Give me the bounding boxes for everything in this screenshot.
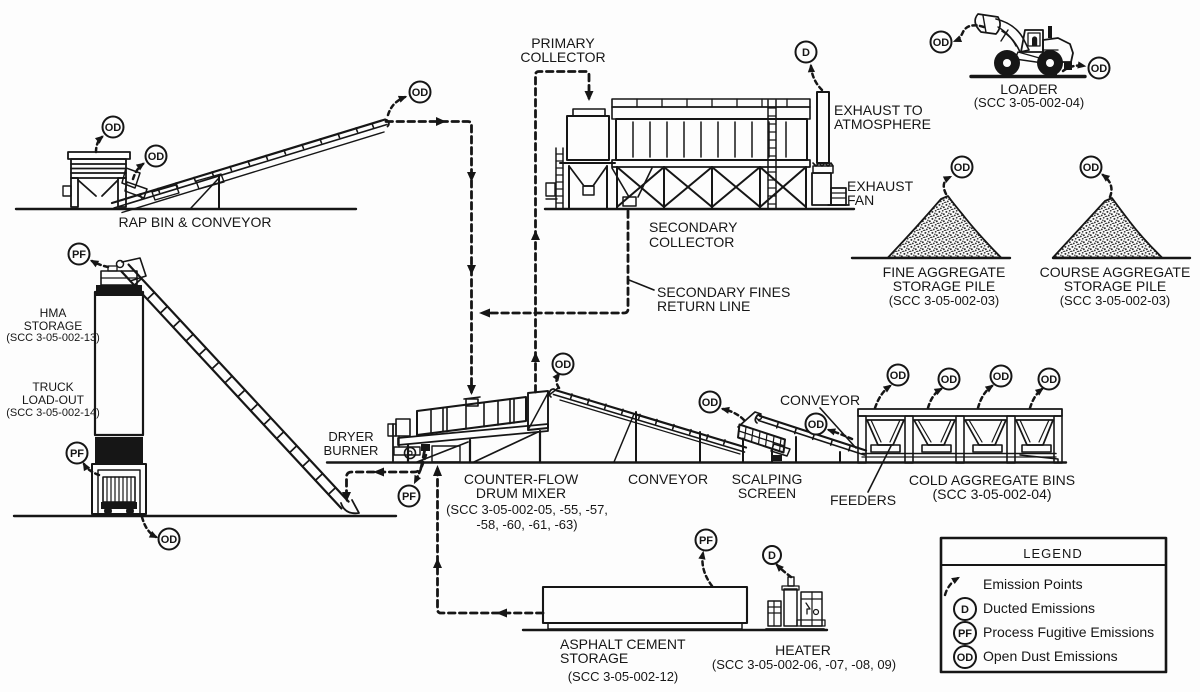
svg-text:OD: OD [808,419,825,431]
svg-text:(SCC 3-05-002-14): (SCC 3-05-002-14) [6,407,100,419]
svg-text:SECONDARY: SECONDARY [649,219,738,235]
svg-text:CONVEYOR: CONVEYOR [780,392,860,408]
svg-text:Process Fugitive Emissions: Process Fugitive Emissions [983,624,1154,640]
svg-text:D: D [802,47,810,59]
svg-text:FAN: FAN [847,192,874,208]
svg-text:COLLECTOR: COLLECTOR [649,234,734,250]
svg-text:OD: OD [555,359,572,371]
svg-text:Ducted Emissions: Ducted Emissions [983,600,1095,616]
svg-text:ATMOSPHERE: ATMOSPHERE [834,116,931,132]
svg-text:PF: PF [72,249,86,261]
svg-text:PF: PF [958,628,972,640]
svg-text:(SCC 3-05-002-04): (SCC 3-05-002-04) [974,95,1085,110]
svg-text:OD: OD [957,652,974,664]
svg-text:OD: OD [1091,63,1108,75]
svg-text:RETURN LINE: RETURN LINE [657,298,750,314]
svg-text:LEGEND: LEGEND [1023,546,1082,561]
svg-text:(SCC 3-05-002-06, -07, -08, 09: (SCC 3-05-002-06, -07, -08, 09) [712,657,896,672]
svg-text:OD: OD [161,534,178,546]
svg-text:OD: OD [954,162,971,174]
svg-text:FEEDERS: FEEDERS [830,492,896,508]
svg-text:HMA: HMA [40,306,67,320]
svg-text:OD: OD [702,397,719,409]
svg-text:D: D [961,604,969,616]
svg-text:OD: OD [993,371,1010,383]
svg-text:STORAGE: STORAGE [560,650,628,666]
svg-text:(SCC 3-05-002-03): (SCC 3-05-002-03) [889,293,1000,308]
svg-text:OD: OD [148,151,165,163]
svg-text:CONVEYOR: CONVEYOR [628,471,708,487]
svg-text:Open Dust Emissions: Open Dust Emissions [983,648,1118,664]
svg-text:-58, -60, -61, -63): -58, -60, -61, -63) [476,517,577,532]
svg-text:OD: OD [890,370,907,382]
svg-text:(SCC 3-05-002-03): (SCC 3-05-002-03) [1060,293,1171,308]
svg-text:OD: OD [941,374,958,386]
svg-text:STORAGE PILE: STORAGE PILE [893,278,995,294]
svg-text:PF: PF [402,491,416,503]
svg-text:(SCC 3-05-002-04): (SCC 3-05-002-04) [932,486,1051,502]
svg-text:(SCC 3-05-002-13): (SCC 3-05-002-13) [6,332,100,344]
svg-text:COLLECTOR: COLLECTOR [520,49,605,65]
svg-text:SCREEN: SCREEN [738,485,796,501]
svg-text:OD: OD [1041,374,1058,386]
svg-text:DRYER: DRYER [328,429,373,444]
svg-text:TRUCK: TRUCK [32,380,73,394]
svg-text:OD: OD [105,122,122,134]
svg-text:RAP BIN & CONVEYOR: RAP BIN & CONVEYOR [118,214,271,230]
svg-text:PF: PF [70,448,84,460]
svg-text:PF: PF [699,535,713,547]
svg-text:D: D [768,550,776,562]
svg-text:OD: OD [933,37,950,49]
svg-text:(SCC 3-05-002-05, -55, -57,: (SCC 3-05-002-05, -55, -57, [446,502,608,517]
svg-text:BURNER: BURNER [324,443,379,458]
svg-text:OD: OD [412,87,429,99]
svg-text:STORAGE: STORAGE [24,319,82,333]
svg-text:STORAGE PILE: STORAGE PILE [1064,278,1166,294]
svg-text:LOAD-OUT: LOAD-OUT [22,393,85,407]
svg-text:Emission Points: Emission Points [983,576,1083,592]
svg-text:HEATER: HEATER [775,642,831,658]
svg-text:OD: OD [1083,162,1100,174]
svg-text:DRUM MIXER: DRUM MIXER [476,485,566,501]
svg-text:(SCC 3-05-002-12): (SCC 3-05-002-12) [568,669,679,684]
